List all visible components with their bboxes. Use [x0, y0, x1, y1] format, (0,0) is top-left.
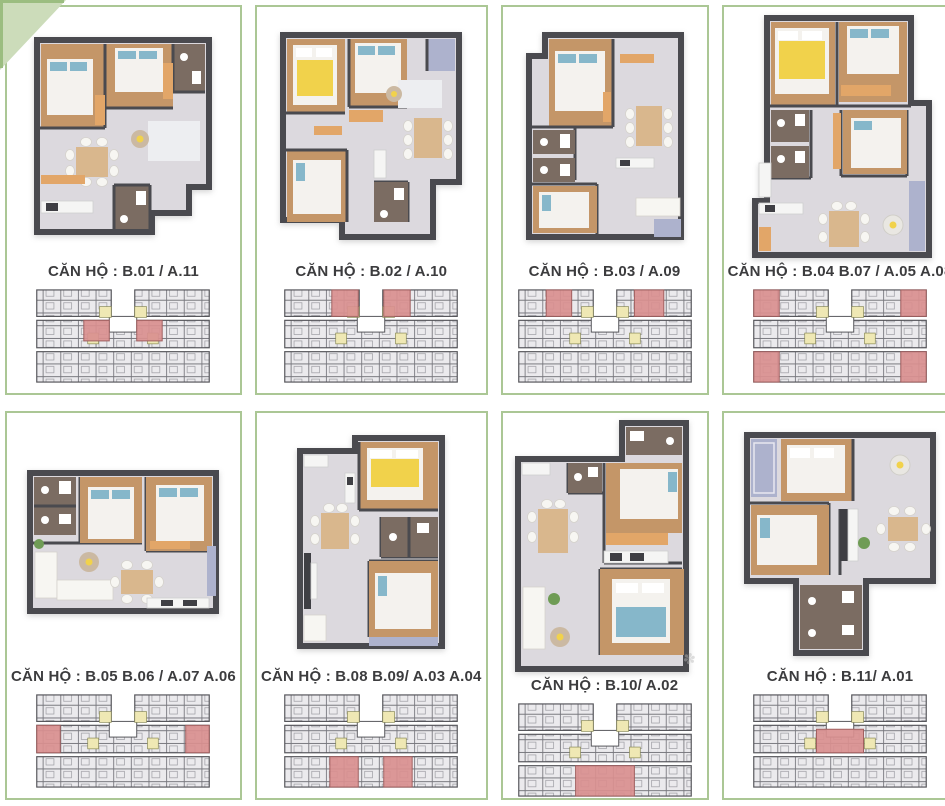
- unit-label-b01: CĂN HỘ : B.01 / A.11: [48, 263, 199, 280]
- unit-label-b04: CĂN HỘ : B.04 B.07 / A.05 A.08: [728, 263, 945, 280]
- floorplan-brochure-page: ✽: [0, 0, 945, 806]
- key-plan-b04: [742, 287, 938, 385]
- key-plan-b08: [273, 692, 469, 790]
- key-plan-b03: [507, 287, 703, 385]
- unit-card-b02: CĂN HỘ : B.02 / A.10: [255, 5, 488, 395]
- unit-card-b04: CĂN HỘ : B.04 B.07 / A.05 A.08: [722, 5, 945, 395]
- corner-triangle-edge: [0, 0, 64, 3]
- floor-plan-image-b08: [261, 417, 482, 666]
- key-plan-b11: [742, 692, 938, 790]
- unit-card-b01: CĂN HỘ : B.01 / A.11: [5, 5, 242, 395]
- floor-plan-image-b01: [11, 11, 236, 261]
- unit-card-b05: CĂN HỘ : B.05 B.06 / A.07 A.06: [5, 411, 242, 800]
- floor-plan-image-b02: [261, 11, 482, 261]
- unit-card-b11: CĂN HỘ : B.11/ A.01: [722, 411, 945, 800]
- unit-card-b03: CĂN HỘ : B.03 / A.09: [501, 5, 709, 395]
- key-plan-b02: [273, 287, 469, 385]
- unit-label-b10: CĂN HỘ : B.10/ A.02: [531, 677, 678, 694]
- floor-plan-image-b11: [728, 417, 945, 666]
- unit-label-b02: CĂN HỘ : B.02 / A.10: [295, 263, 447, 280]
- unit-label-b11: CĂN HỘ : B.11/ A.01: [767, 668, 914, 685]
- corner-triangle-edge: [0, 0, 3, 68]
- unit-label-b08: CĂN HỘ : B.08 B.09/ A.03 A.04: [261, 668, 482, 685]
- floor-plan-image-b10: [507, 417, 703, 675]
- floor-plan-image-b05: [11, 417, 236, 666]
- key-plan-b01: [25, 287, 221, 385]
- unit-label-b03: CĂN HỘ : B.03 / A.09: [529, 263, 681, 280]
- key-plan-b05: [25, 692, 221, 790]
- floor-plan-image-b04: [728, 11, 945, 261]
- floor-plan-image-b03: [507, 11, 703, 261]
- unit-label-b05: CĂN HỘ : B.05 B.06 / A.07 A.06: [11, 668, 236, 685]
- key-plan-b10: [507, 701, 703, 799]
- unit-card-b08: CĂN HỘ : B.08 B.09/ A.03 A.04: [255, 411, 488, 800]
- unit-card-b10: CĂN HỘ : B.10/ A.02: [501, 411, 709, 800]
